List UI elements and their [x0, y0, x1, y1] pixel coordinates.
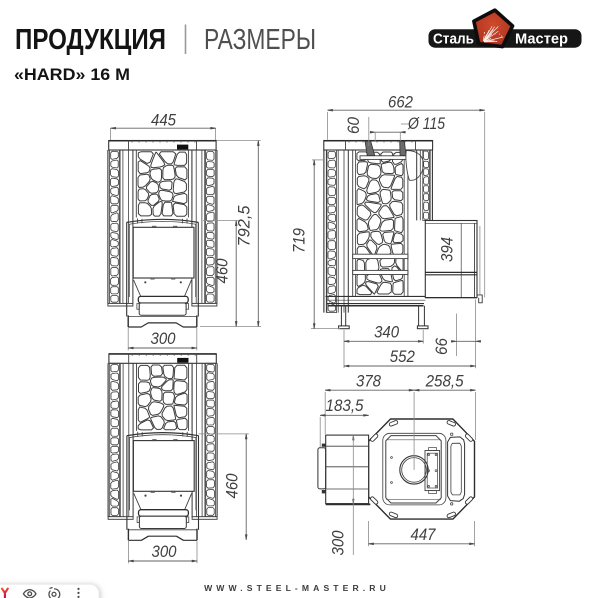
svg-text:719: 719 — [290, 228, 309, 253]
svg-text:447: 447 — [411, 525, 436, 544]
svg-text:662: 662 — [388, 93, 413, 112]
svg-text:300: 300 — [151, 329, 176, 348]
svg-text:РАЗМЕРЫ: РАЗМЕРЫ — [204, 24, 316, 56]
svg-text:460: 460 — [223, 473, 242, 498]
svg-text:66: 66 — [432, 338, 451, 355]
svg-text:300: 300 — [329, 530, 348, 555]
svg-text:WWW.STEEL-MASTER.RU: WWW.STEEL-MASTER.RU — [204, 583, 390, 593]
svg-text:Сталь: Сталь — [433, 30, 474, 47]
svg-text:ПРОДУКЦИЯ: ПРОДУКЦИЯ — [15, 24, 166, 56]
svg-text:Мастер: Мастер — [515, 30, 568, 47]
svg-text:183,5: 183,5 — [326, 396, 364, 415]
svg-text:300: 300 — [152, 542, 177, 561]
svg-text:258,5: 258,5 — [425, 371, 464, 390]
svg-text:378: 378 — [356, 371, 381, 390]
svg-text:60: 60 — [344, 117, 363, 134]
svg-text:Ø 115: Ø 115 — [407, 114, 445, 133]
svg-text:«HARD» 16 М: «HARD» 16 М — [14, 66, 130, 84]
svg-text:394: 394 — [438, 237, 457, 262]
svg-text:340: 340 — [374, 322, 399, 341]
svg-text:460: 460 — [213, 258, 232, 283]
svg-text:445: 445 — [151, 111, 176, 130]
svg-text:552: 552 — [390, 347, 415, 366]
